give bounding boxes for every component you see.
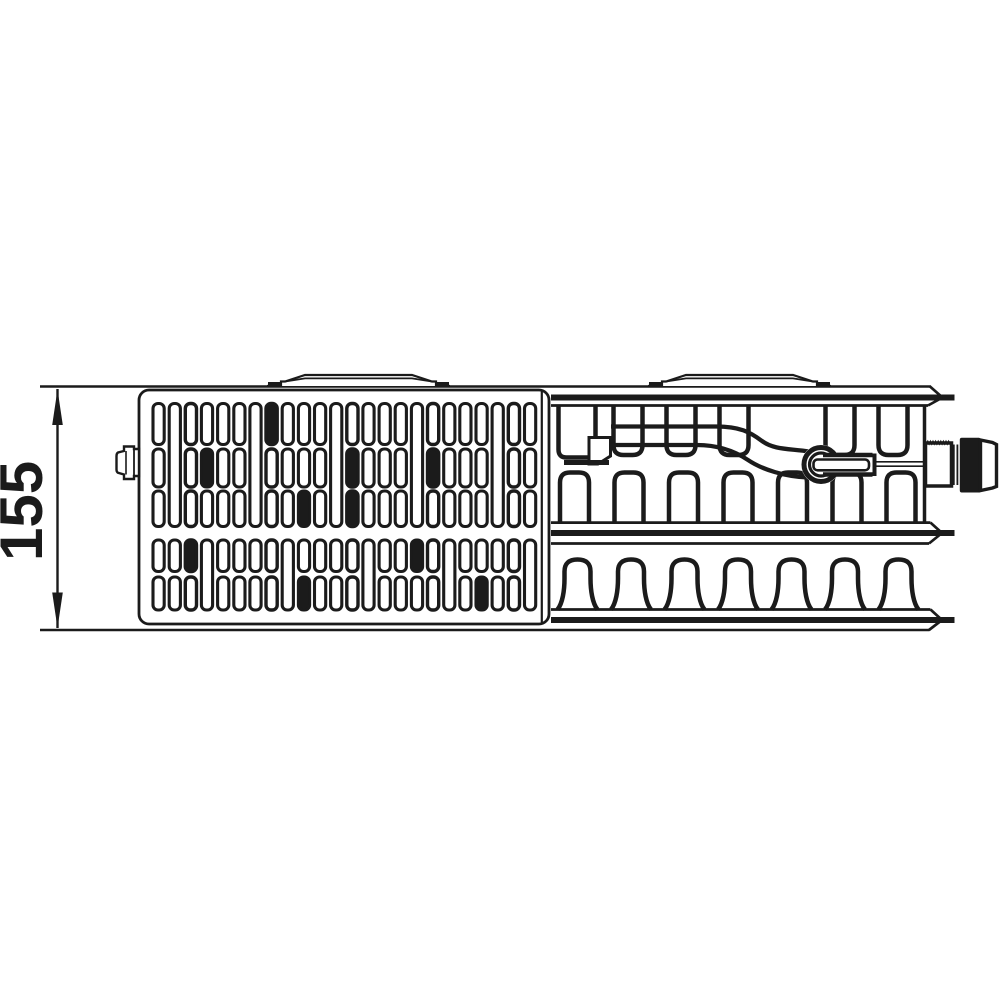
svg-text:155: 155 <box>0 461 55 561</box>
